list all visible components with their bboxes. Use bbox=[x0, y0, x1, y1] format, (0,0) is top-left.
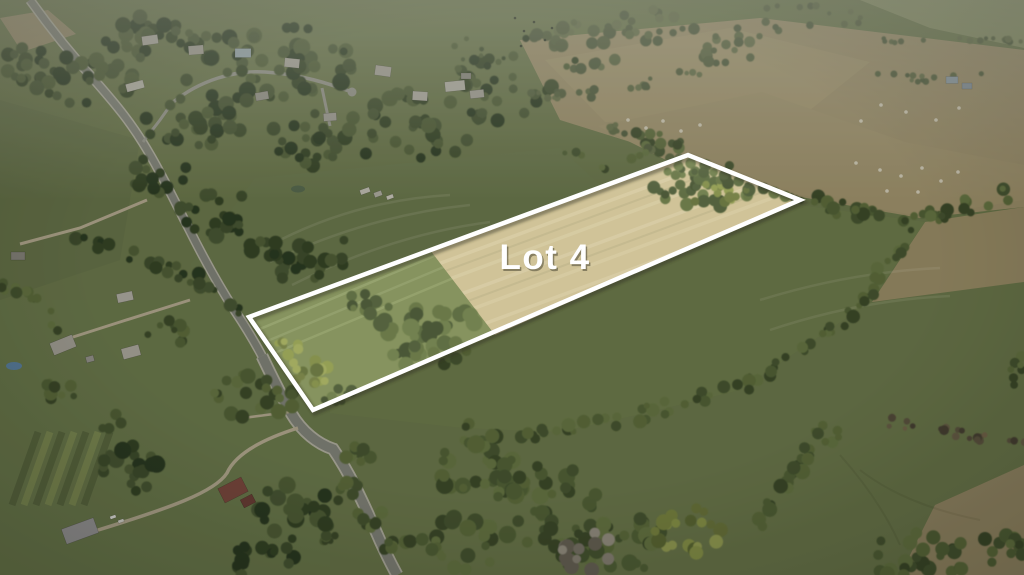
aerial-photo-stage: Lot 4 Lot 4 bbox=[0, 0, 1024, 575]
aerial-photograph: Lot 4 Lot 4 bbox=[0, 0, 1024, 575]
lot-label: Lot 4 bbox=[499, 238, 590, 277]
